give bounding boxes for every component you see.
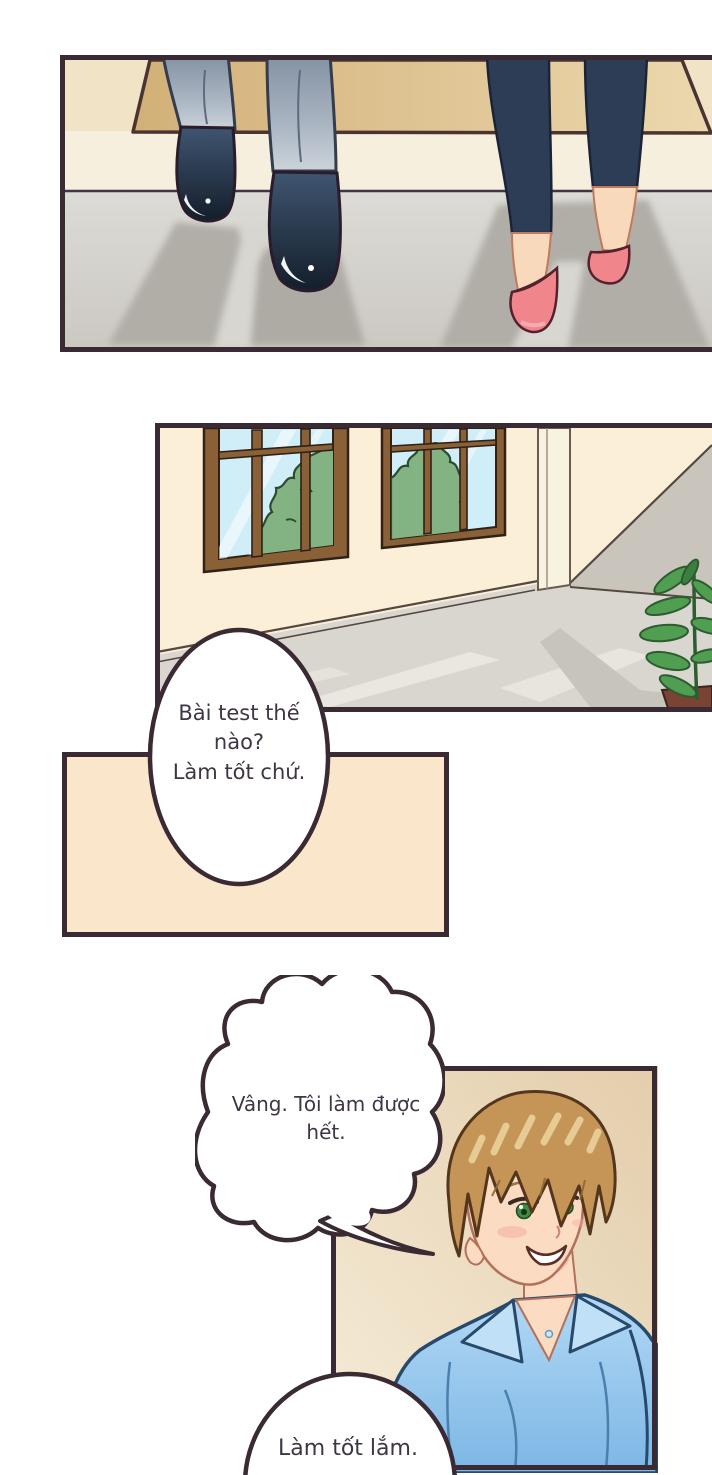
bubble3-text: Làm tốt lắm. bbox=[243, 1434, 453, 1465]
window-left bbox=[204, 428, 348, 572]
panel1-bench-feet-artwork bbox=[60, 55, 712, 352]
comic-page: Bài test thế nào? Làm tốt chứ. Vâng. Tôi… bbox=[0, 0, 712, 1475]
bubble2-text: Vâng. Tôi làm được hết. bbox=[206, 1090, 446, 1146]
window-right bbox=[382, 428, 505, 548]
dark-shoe-right bbox=[269, 172, 340, 291]
bubble1-text: Bài test thế nào? Làm tốt chứ. bbox=[148, 699, 330, 787]
dark-shoe-left bbox=[177, 127, 235, 221]
pillar bbox=[538, 428, 570, 590]
